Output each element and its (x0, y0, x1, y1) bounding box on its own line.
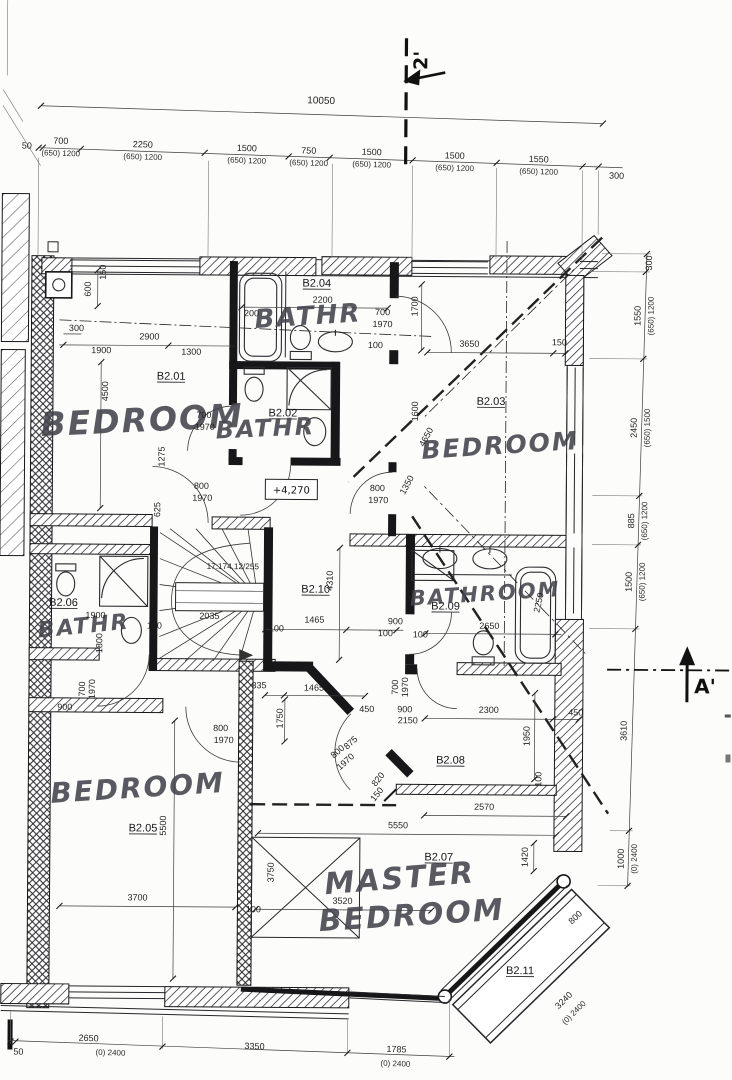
corridor-east-wall-b (405, 654, 414, 664)
dim-top-300: 300 (609, 171, 624, 181)
dim-5500: 5500 (158, 816, 168, 836)
room-id-b204: B2.04 (302, 278, 331, 290)
room-label-b205: BEDROOM (49, 766, 225, 810)
b208-west-jamb (405, 664, 417, 674)
angled-wall-2 (388, 752, 410, 774)
dim-1700: 1700 (410, 296, 420, 316)
balcony-edge-line-2 (1, 1010, 349, 1018)
dim-5550: 5550 (388, 820, 408, 830)
dim-150-b: 150 (552, 337, 567, 347)
dim-200: 200 (244, 308, 259, 318)
win-top-700: (650) 1200 (41, 148, 80, 158)
window-top-2 (412, 261, 488, 274)
b205-east-wall (237, 661, 253, 985)
door-b208-w: 700 (390, 680, 400, 695)
dim-b211-3240: 3240 (553, 990, 574, 1011)
window-top-1 (70, 260, 200, 273)
door-b204-h: 1970 (372, 319, 392, 329)
b209-north-wall (350, 534, 566, 548)
stair-flight (176, 583, 264, 612)
dim-100-a: 100 (368, 340, 383, 350)
door-b203-h: 1970 (368, 495, 388, 505)
section-arrow-right-head (679, 646, 695, 665)
dim-top-2250: 2250 (133, 139, 153, 150)
win-r-1000: (0) 2400 (630, 843, 639, 873)
room-id-b205: B2.05 (129, 822, 158, 834)
stair-note-label: 17:174,12/255 (207, 562, 260, 571)
b206-north-wall (30, 544, 152, 555)
toilet-tank-b206 (56, 564, 76, 571)
room-label-b203: BEDROOM (421, 426, 580, 465)
section-line-top (406, 38, 407, 168)
dim-2035: 2035 (199, 611, 219, 621)
dim-100-f: 100 (246, 904, 261, 914)
dim-600: 600 (83, 282, 93, 297)
dim-450-b: 450 (568, 707, 583, 717)
b208-knee-wall (396, 784, 556, 795)
dim-r-1550: 1550 (633, 306, 643, 326)
section-line-right (607, 670, 731, 671)
window-right-3 (565, 547, 581, 613)
dim-900-c: 900 (397, 704, 412, 714)
win-top-1500a: (650) 1200 (227, 156, 266, 166)
dim-r-1500: 1500 (624, 572, 634, 592)
b202-south-wall-b (291, 457, 341, 465)
b201-east-wall-a (229, 261, 238, 405)
dim-top-750: 750 (301, 145, 316, 155)
dim-r-885: 885 (626, 513, 636, 528)
dim-100-d: 100 (147, 620, 162, 630)
dim-1465-b: 1465 (304, 683, 324, 693)
b206-south-wall (29, 648, 99, 660)
dim-1950: 1950 (522, 726, 532, 746)
ridge-line-3 (250, 804, 396, 805)
room-label-b201: BEDROOM (40, 396, 245, 444)
level-label: +4,270 (273, 485, 310, 496)
section-right-label: A' (694, 674, 716, 698)
corridor-west-wall (263, 527, 273, 663)
door-landing-w: 800 (194, 481, 209, 491)
room-label-b204: BATHR (254, 298, 363, 335)
neighbor-wall-lower (0, 349, 25, 555)
door-b206-w: 700 (77, 681, 87, 696)
right-pier-1 (565, 275, 584, 365)
dim-2570: 2570 (474, 802, 494, 812)
win-top-1500c: (650) 1200 (435, 163, 474, 173)
dim-top-50: 50 (22, 140, 32, 150)
dim-3700: 3700 (127, 892, 147, 902)
room-id-b211: B2.11 (506, 965, 534, 977)
page-edge-line (7, 0, 8, 75)
window-bottom-b205 (69, 986, 165, 999)
dim-1275: 1275 (157, 447, 167, 467)
stair-west-wall (149, 526, 158, 670)
room-id-b208: B2.08 (436, 754, 465, 766)
door-b205-w: 800 (213, 723, 228, 733)
dim-4310: 4310 (325, 571, 335, 591)
dim-4500: 4500 (100, 381, 110, 401)
staircase (159, 529, 264, 662)
floor-plan-canvas: 1005050700(650) 12002250(650) 12001500(6… (0, 0, 732, 1080)
stray-roof-line-2 (3, 89, 23, 121)
dim-900-a: 900 (388, 616, 403, 626)
edge-artifact-2 (725, 755, 730, 763)
win-r-1500: (650) 1200 (638, 562, 647, 601)
door-arc-b203 (350, 472, 392, 514)
win-top-1500b: (650) 1200 (352, 159, 391, 169)
room-label-b202: BATHR (215, 412, 316, 444)
dim-3750: 3750 (266, 862, 276, 882)
b203-west-wall-a (388, 462, 396, 472)
dim-2900: 2900 (139, 331, 159, 341)
door-arc-b204 (395, 296, 451, 352)
dim-2650: 2650 (479, 621, 499, 631)
dim-1300: 1300 (181, 347, 201, 357)
corner-post-2 (557, 875, 570, 888)
dim-900-b: 900 (57, 702, 72, 712)
dim-top-700: 700 (53, 136, 68, 146)
neighbor-wall-upper (1, 193, 29, 341)
toilet-b202 (245, 377, 263, 401)
dim-3650: 3650 (459, 339, 479, 349)
dim-top-1550: 1550 (529, 154, 549, 165)
door-b201-w: 700 (196, 410, 211, 420)
edge-artifact-1 (725, 715, 731, 718)
stair-south-wall (149, 658, 275, 671)
dim-b-1785: 1785 (386, 1044, 406, 1055)
dim-b-3350: 3350 (244, 1041, 264, 1052)
dim-1420: 1420 (520, 847, 530, 867)
dim-1800: 1800 (94, 633, 104, 653)
dim-2300: 2300 (479, 705, 499, 715)
b204-east-wall-b (389, 350, 398, 364)
scanned-floor-plan-sheet: 1005050700(650) 12002250(650) 12001500(6… (0, 0, 732, 1080)
room-id-b203: B2.03 (477, 396, 506, 408)
duct-b209-diag (412, 550, 454, 580)
dim-1465-a: 1465 (304, 615, 324, 625)
b204-east-wall-a (390, 262, 399, 298)
door-b201-h: 1970 (195, 422, 215, 432)
win-top-750: (650) 1200 (289, 158, 328, 168)
dim-150-a: 150 (98, 265, 108, 280)
win-b-1785: (0) 2400 (380, 1059, 411, 1069)
dim-b-2650: 2650 (78, 1033, 98, 1044)
knee-wall-end-cap (384, 789, 396, 801)
b203-west-wall-b (388, 514, 396, 536)
dim-top-1500c: 1500 (445, 150, 465, 161)
room-id-b201: B2.01 (157, 371, 186, 383)
win-r-1550: (650) 1200 (646, 296, 655, 335)
interior-dim-lines (55, 270, 582, 982)
win-r-885: (650) 1200 (640, 501, 649, 540)
door-b203-w: 800 (370, 483, 385, 493)
win-top-2250: (650) 1200 (123, 152, 162, 162)
dim-2150: 2150 (398, 715, 418, 725)
win-r-2450: (650) 1500 (643, 408, 652, 447)
room-id-b206: B2.06 (49, 597, 78, 609)
dim-1750: 1750 (275, 708, 285, 728)
dim-100-e: 100 (269, 623, 284, 633)
dim-1900-b: 1900 (85, 610, 105, 620)
win-b-2650: (0) 2400 (95, 1048, 126, 1058)
door-b208-h: 1970 (400, 677, 410, 697)
dim-100-c: 100 (413, 629, 428, 639)
door-b206-h: 1970 (87, 679, 97, 699)
dim-300-a: 300 (69, 323, 84, 333)
dim-b-50: 50 (13, 1047, 23, 1057)
dim-100-g: 100 (533, 772, 543, 787)
bottom-wall-pier-1 (1, 983, 69, 1003)
b202-south-wall-a (229, 457, 243, 465)
stray-roof-line-1 (3, 105, 41, 165)
landing-wall (212, 517, 270, 529)
dim-top-1500b: 1500 (362, 147, 382, 158)
b204-b202-divider (229, 361, 339, 370)
b201-south-wall (30, 514, 152, 527)
dim-1900-a: 1900 (91, 345, 111, 355)
section-bar-bottom-left (7, 1020, 12, 1050)
dim-r-300: 300 (644, 255, 654, 270)
wall-block-small (48, 242, 58, 252)
window-right-2 (566, 453, 583, 533)
chimney-block (46, 272, 72, 298)
door-b204-w: 700 (375, 307, 390, 317)
toilet-b206 (57, 572, 75, 596)
win-top-1550: (650) 1200 (519, 167, 558, 177)
dim-625: 625 (152, 502, 162, 517)
dim-r-2450: 2450 (629, 418, 639, 438)
dim-top-1500a: 1500 (237, 143, 257, 154)
annotations: 1005050700(650) 12002250(650) 12001500(6… (13, 48, 720, 1071)
dim-450-a: 450 (359, 704, 374, 714)
b202-east-wall (331, 362, 341, 462)
dim-335: 335 (251, 680, 266, 690)
door-b205-h: 1970 (214, 735, 234, 745)
vanity-counter-b209 (414, 574, 512, 575)
door-landing-h: 1970 (192, 493, 212, 503)
section-top-label: 2' (410, 51, 432, 70)
dim-r-3610: 3610 (619, 721, 629, 741)
dim-top-total: 10050 (307, 95, 336, 107)
door-arc-b208 (417, 668, 457, 708)
dim-r-1000: 1000 (616, 849, 626, 869)
dim-150-c: 150 (368, 785, 385, 803)
dim-3520: 3520 (332, 896, 352, 906)
dim-1350: 1350 (398, 474, 416, 496)
dim-100-b: 100 (378, 628, 393, 638)
toilet-tank-b204 (290, 351, 311, 359)
corridor-south-wall (263, 661, 313, 671)
dim-1600: 1600 (410, 401, 420, 421)
dim-2200: 2200 (313, 295, 333, 305)
